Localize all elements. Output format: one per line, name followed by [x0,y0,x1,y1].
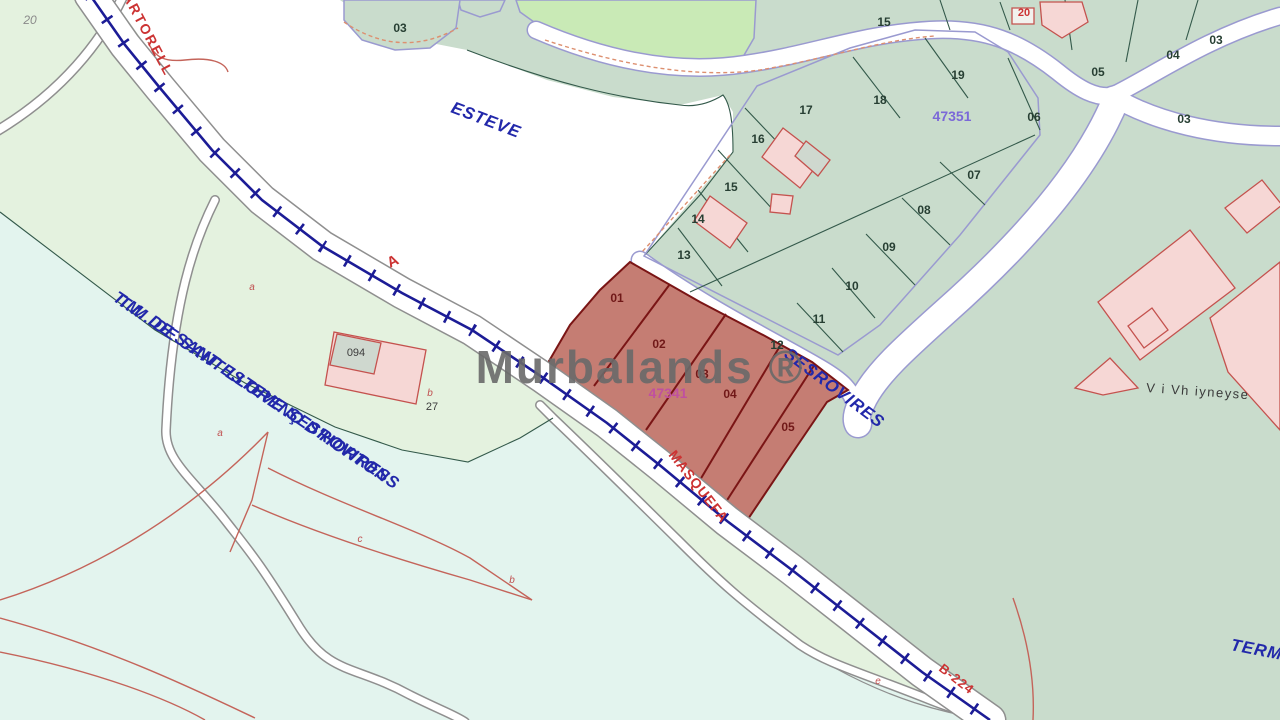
parcel-16: 16 [751,132,765,146]
cadastral-ref-47351: 47351 [933,108,972,124]
parcel-03-east: 03 [1177,112,1191,126]
watermark-murbalands: Murbalands ® [476,341,805,393]
parcel-13: 13 [677,248,691,262]
parcel-15-block: 15 [724,180,738,194]
parcel-10: 10 [845,279,859,293]
red-parcel-05: 05 [781,420,795,434]
parcel-08: 08 [917,203,931,217]
label-letter-b: b [427,388,433,399]
label-corner-20: 20 [22,13,37,27]
parcel-03-top: 03 [1209,33,1223,47]
label-plot-27: 27 [426,401,438,413]
parcel-04-top: 04 [1166,48,1180,62]
parcel-17: 17 [799,103,813,117]
parcel-20-top: 20 [1018,7,1030,19]
parcel-05-top: 05 [1091,65,1105,79]
cadastral-map-canvas[interactable]: MARTORELL 20 03 ESTEVE A T.M. DE SANT ES… [0,0,1280,720]
label-letter-a1: a [249,282,255,293]
map-svg: MARTORELL 20 03 ESTEVE A T.M. DE SANT ES… [0,0,1280,720]
parcel-11: 11 [813,312,826,326]
parcel-06: 06 [1027,110,1041,124]
building-block-small [770,194,793,214]
label-letter-e: e [875,676,881,687]
label-pond-03: 03 [393,21,407,35]
parcel-09: 09 [882,240,896,254]
label-building-094: 094 [347,347,365,359]
parcel-19: 19 [951,68,965,82]
parcel-07: 07 [967,168,981,182]
parcel-18: 18 [873,93,887,107]
parcel-15-top: 15 [877,15,891,29]
label-letter-c: c [358,534,363,545]
label-letter-b2: b [509,575,515,586]
red-parcel-01: 01 [610,291,624,305]
parcel-14: 14 [691,212,705,226]
label-letter-a2: a [217,428,223,439]
